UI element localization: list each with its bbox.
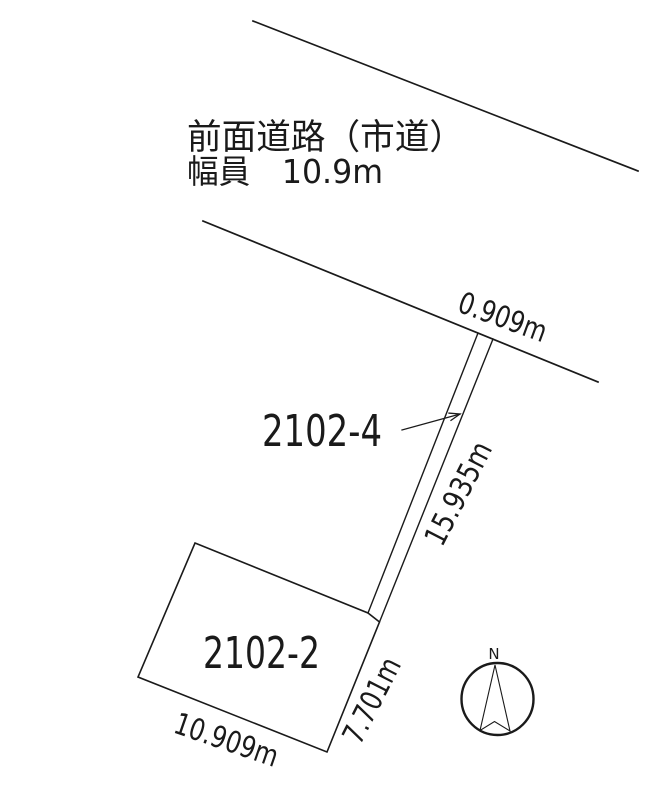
compass-needle-icon [480,665,510,731]
main-lot-number-label: 2102-2 [203,628,320,679]
road-width-label: 幅員 10.9m [187,152,383,191]
cadastral-site-plan: 前面道路（市道） 幅員 10.9m 0.909m 2102-4 15.935m … [0,0,665,800]
north-compass: N [462,645,534,735]
compass-north-label: N [488,645,499,663]
road-lower-edge-line [203,221,598,382]
flag-lot-number-label: 2102-4 [262,406,382,457]
flag-lot-pointer-arrow [402,414,460,430]
plan-labels: 前面道路（市道） 幅員 10.9m 0.909m 2102-4 15.935m … [169,118,551,775]
site-plan-drawing: 前面道路（市道） 幅員 10.9m 0.909m 2102-4 15.935m … [0,0,665,800]
main-lot-bottom-dimension-label: 10.909m [169,706,283,774]
frontage-dimension-label: 0.909m [453,286,551,350]
